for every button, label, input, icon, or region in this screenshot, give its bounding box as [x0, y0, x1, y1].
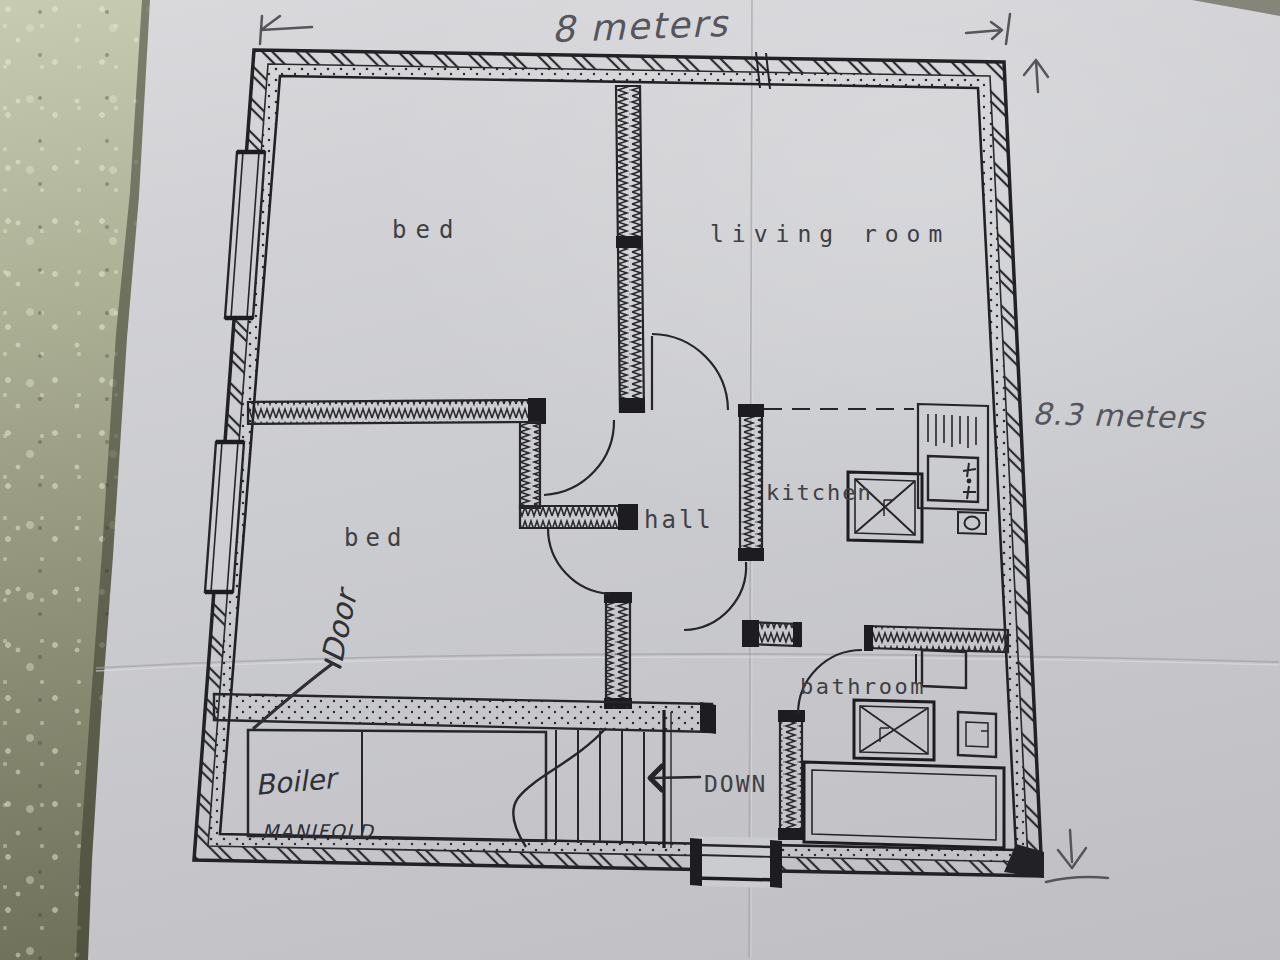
arrow-down-bottom-right: [1046, 830, 1108, 882]
room-label-bathroom: bathroom: [800, 674, 926, 699]
interior-wall-bed-divider: [248, 398, 638, 530]
interior-wall-bathroom-left: [778, 710, 805, 840]
bathroom-toilet: [958, 712, 996, 757]
boiler-label: Boiler: [254, 762, 342, 802]
dimension-arrow-left: [260, 16, 312, 44]
floor-plan-drawing: bed living room bed hall kitchen bathroo…: [0, 0, 1280, 960]
room-label-living-room: living room: [710, 221, 950, 247]
kitchen-sink: [928, 456, 978, 502]
kitchen-drainer-hatch: [928, 414, 976, 448]
interior-wall-kitchen-left: [738, 404, 764, 561]
room-label-bed-top: bed: [392, 216, 462, 244]
photo-of-floor-plan: bed living room bed hall kitchen bathroo…: [0, 0, 1280, 960]
bathroom-shower: [854, 700, 934, 760]
door-annotation: Door: [315, 583, 365, 665]
entrance-threshold: [690, 836, 782, 888]
door-arc-bed-top: [544, 420, 614, 495]
interior-wall-hall-lower: [604, 592, 632, 709]
north-arrow-up: [1024, 60, 1048, 92]
dimension-label-width: 8 meters: [551, 3, 730, 50]
room-label-bed-bottom: bed: [344, 524, 408, 552]
manifold-label: MANIFOLD: [262, 820, 375, 842]
door-arc-hall: [548, 528, 610, 594]
door-arc-living-room: [652, 334, 728, 410]
kitchen-fixtures: [764, 404, 988, 542]
stair-treads: [556, 730, 644, 844]
dimension-arrow-right: [966, 14, 1010, 44]
down-arrow: [650, 766, 700, 790]
room-label-kitchen: kitchen: [766, 480, 873, 505]
kitchen-small-appliance: [958, 512, 986, 534]
interior-wall-kitchen-bathroom: [742, 620, 1008, 652]
stair-break-line: [513, 728, 606, 847]
room-label-hall: hall: [644, 506, 714, 534]
door-arc-kitchen: [684, 562, 746, 630]
fold-crease-horizontal: [96, 654, 1279, 671]
bathtub: [804, 762, 1004, 848]
interior-wall-bed-living-divider: [616, 86, 645, 413]
dimension-label-height: 8.3 meters: [1032, 396, 1207, 436]
stairs-down-label: DOWN: [704, 771, 767, 797]
